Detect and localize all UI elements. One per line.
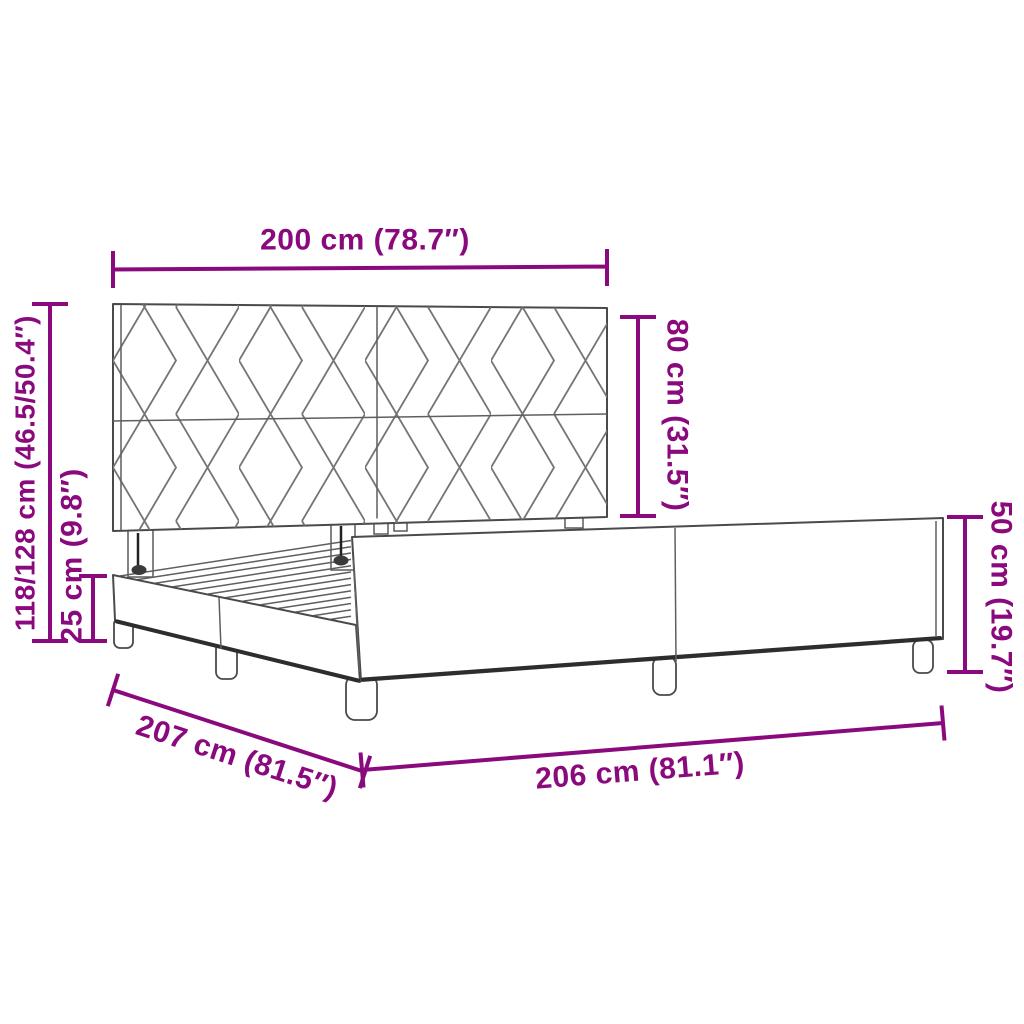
headboard	[113, 304, 607, 531]
fastening-bolts	[132, 526, 349, 575]
front-rail-seam	[675, 528, 676, 662]
dimension-frame-length: 207 cm (81.5″)	[108, 674, 370, 805]
dimension-label-headboard-width: 200 cm (78.7″)	[260, 224, 470, 257]
dimension-line-headboard-height	[620, 317, 656, 516]
bed-frame-dimension-diagram: 200 cm (78.7″) 80 cm (31.5″) 50 cm (19.7…	[0, 0, 1024, 1024]
dimension-label-headboard-height: 80 cm (31.5″)	[661, 319, 694, 512]
bolt-center-nut	[334, 556, 349, 566]
bolt-left-nut	[132, 565, 147, 575]
dimension-label-frame-length: 207 cm (81.5″)	[132, 709, 342, 805]
dimension-footboard-height: 50 cm (19.7″)	[947, 501, 1018, 694]
dimension-line-footboard-height	[947, 517, 983, 672]
diagram-canvas: 200 cm (78.7″) 80 cm (31.5″) 50 cm (19.7…	[0, 0, 1024, 1024]
front-rail-face	[352, 518, 943, 681]
front-rail	[352, 518, 943, 681]
dimension-label-side-rail-height: 25 cm (9.8″)	[56, 468, 89, 643]
leg-front-right	[913, 640, 933, 673]
leg-front-middle	[653, 657, 676, 695]
dimension-frame-width: 206 cm (81.1″)	[361, 706, 945, 796]
dimension-label-footboard-height: 50 cm (19.7″)	[985, 501, 1018, 694]
dimension-label-overall-height: 118/128 cm (46.5/50.4″)	[10, 315, 41, 631]
dimension-side-rail-height: 25 cm (9.8″)	[56, 468, 108, 643]
dimension-headboard-width: 200 cm (78.7″)	[113, 224, 607, 289]
dimension-headboard-height: 80 cm (31.5″)	[620, 317, 694, 516]
leg-front-left	[346, 676, 377, 720]
